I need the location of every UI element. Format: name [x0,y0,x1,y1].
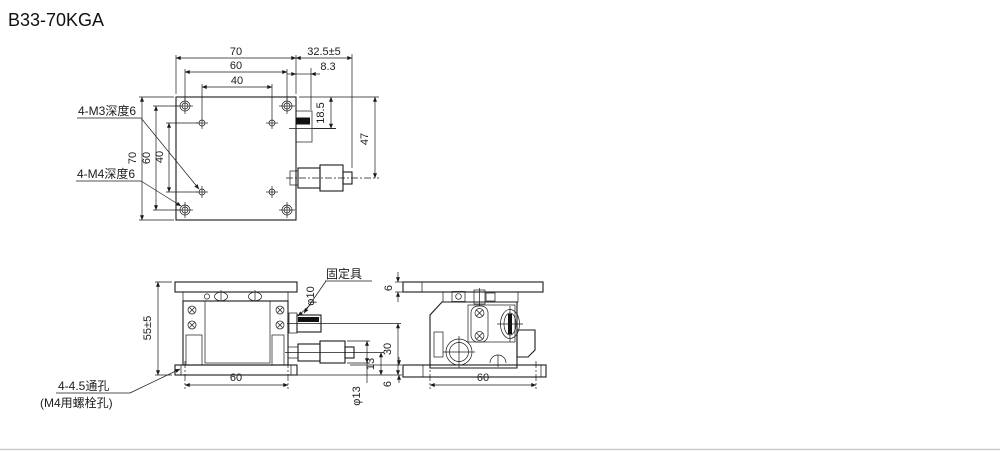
dim-plate-thickness: 6 [383,272,403,302]
dim-mic-axis-height: 13 [365,353,381,376]
dim-side-hole-span: 60 [430,372,536,385]
dim-phi13: φ13 [351,386,363,405]
strip-hole [456,294,462,300]
label-m4: 4-M4深度6 [77,166,135,181]
dim-40-left: 40 [154,151,166,163]
label-through-hole: 4-4.5通孔 [58,379,109,393]
front-inner-plate [205,301,270,363]
technical-drawing: B33-70KGA [0,0,1000,451]
dim-30: 30 [382,343,394,355]
label-fixture: 固定具 [326,266,362,281]
fixture-knob [287,313,401,333]
dim-60-side: 60 [477,372,489,384]
dim-phi10: φ10 [305,286,317,305]
dim-55: 55±5 [142,316,154,340]
dim-front-height: 55±5 [142,282,172,375]
clamp-block [289,111,336,142]
drawing-title: B33-70KGA [8,10,104,30]
front-right-pillar [272,335,284,365]
screw [276,306,284,314]
side-top-plate [403,282,543,292]
dim-32-5: 32.5±5 [307,46,341,58]
dim-18-5: 18.5 [315,102,327,123]
label-m3: 4-M3深度6 [78,103,136,118]
screw [276,321,284,329]
side-right-block [517,330,535,357]
oval-adjuster [497,306,523,342]
dim-60-left: 60 [141,152,153,164]
dim-front-hole-span: 60 [185,372,288,385]
dim-top-inner-span: 40 [202,75,272,117]
side-upper-strip [443,288,518,306]
knurled-knob [320,341,345,363]
strip-hole [204,294,209,299]
dim-8-3: 8.3 [320,61,335,73]
m4-hole [279,202,295,218]
dim-47: 47 [359,133,371,145]
dim-knob-diameter: φ10 [298,286,317,316]
front-top-plate [175,282,297,292]
dim-mic-knob-diameter: φ13 [347,341,370,406]
dim-6-plate: 6 [383,285,395,291]
side-screws [188,306,284,329]
screw [475,332,484,341]
m4-hole-label: 4-M4深度6 [76,166,181,206]
dim-60-top: 60 [230,60,242,72]
micrometer-top-view [286,165,379,191]
top-view: 70 60 40 32.5±5 8.3 [76,46,379,220]
label-bolt-hole: (M4用螺栓孔) [40,395,113,410]
screw [188,321,196,329]
drawing-canvas: B33-70KGA [0,0,1000,451]
screw [188,306,196,314]
m3-hole [266,186,278,198]
top-view-stage-plate [176,97,296,220]
front-left-pillar [186,335,202,365]
dim-60-front: 60 [230,372,242,384]
dim-mic-axis: 47 [359,97,375,178]
screw [475,309,484,318]
m4-hole [279,98,295,114]
dim-70-left: 70 [127,152,139,164]
m4-corner-holes [177,98,295,218]
front-view: 55±5 60 固定具 φ10 30 13 [40,266,402,410]
m3-hole [266,117,278,129]
dim-70-top: 70 [230,46,242,58]
dim-knob-height: 30 [297,324,402,376]
side-view: 6 60 [383,272,546,389]
m3-inner-holes [196,117,278,198]
dim-40-top: 40 [231,75,243,87]
dim-6-base: 6 [382,381,394,387]
micrometer-bore [443,336,475,368]
dim-clamp-offset: 8.3 [287,61,336,110]
